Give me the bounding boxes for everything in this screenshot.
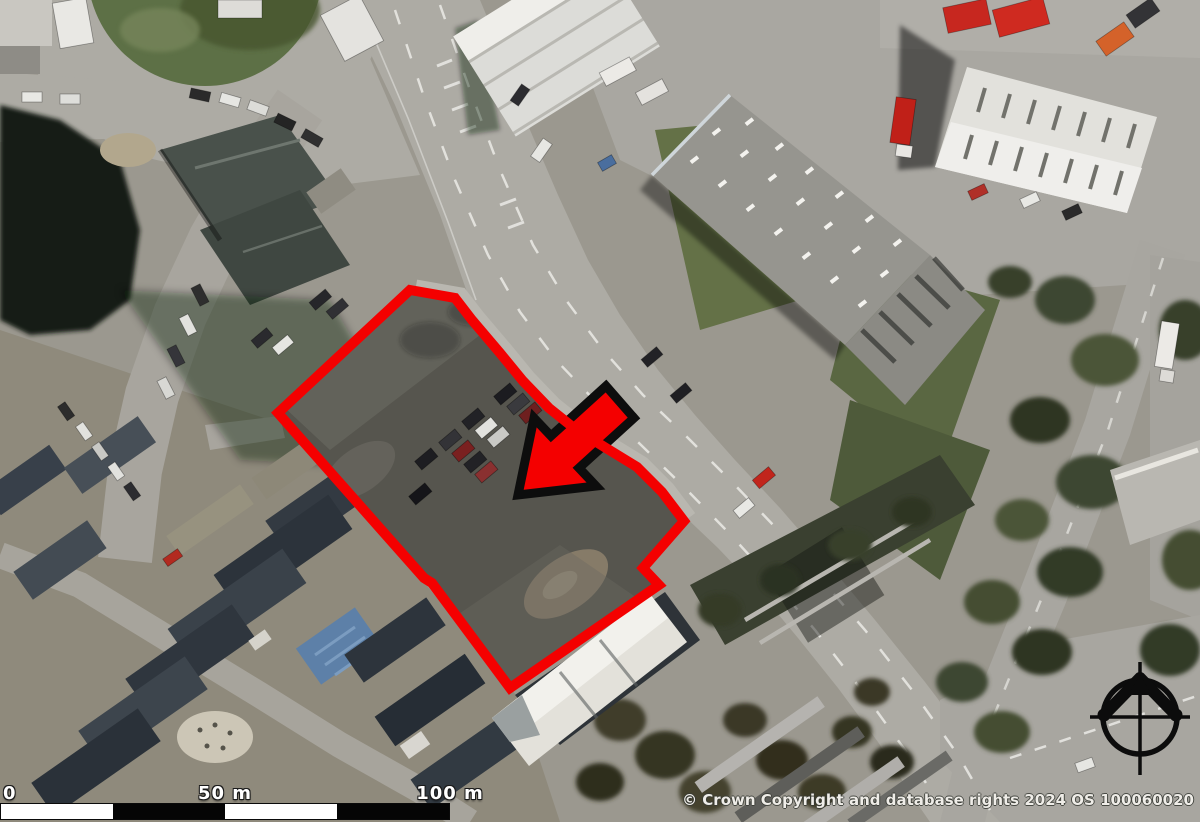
map-canvas: 0 50 m 100 m © Crown Copyright and datab… — [0, 0, 1200, 822]
scale-bar-segment — [225, 804, 337, 819]
scale-bar-segment — [113, 804, 225, 819]
scale-bar-segment — [1, 804, 113, 819]
scale-label-end: 100 m — [412, 783, 488, 804]
scale-label-zero: 0 — [3, 783, 17, 804]
copyright-text: © Crown Copyright and database rights 20… — [682, 791, 1194, 809]
north-compass-icon — [1080, 655, 1200, 785]
scale-bar — [0, 803, 450, 820]
scale-label-mid: 50 m — [194, 783, 256, 804]
aerial-photo — [0, 0, 1200, 822]
scale-bar-segment — [337, 804, 449, 819]
